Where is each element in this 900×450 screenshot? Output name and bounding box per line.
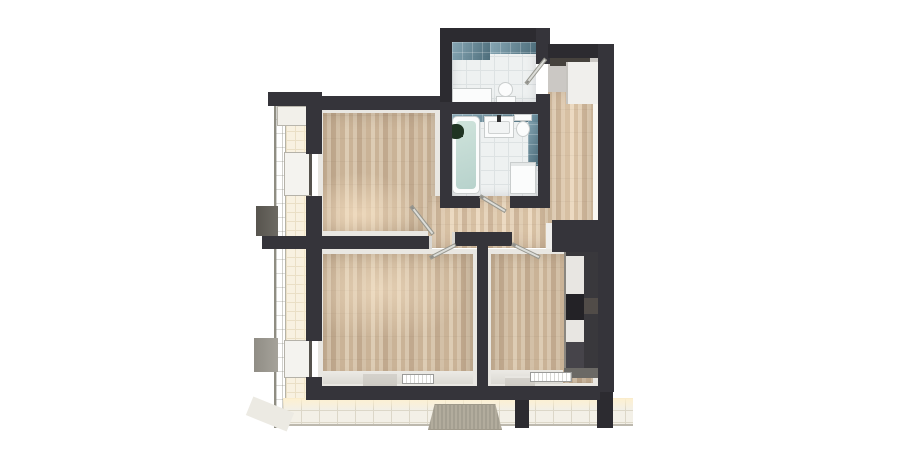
- glass-railing: [274, 96, 286, 428]
- radiator-kitchen: [530, 372, 572, 382]
- balcony-unit-box: [277, 106, 307, 126]
- counter-marble-upper: [566, 256, 584, 294]
- privacy-fin-lower: [254, 338, 278, 372]
- wc-teal-tiles-left: [452, 42, 490, 60]
- washing-machine: [510, 162, 536, 194]
- wall-hall-right-block: [552, 220, 614, 252]
- wall-bath-right: [538, 114, 550, 196]
- sink-basin: [488, 121, 510, 134]
- wall-right-outer: [598, 44, 614, 392]
- wall-face-white: [546, 223, 552, 249]
- wall-bath-bottom-left: [440, 196, 480, 208]
- cabinet-handle-block: [584, 298, 598, 314]
- wall-t-horizontal: [455, 232, 512, 246]
- wall-wc-top: [440, 28, 550, 42]
- wall-bath-left: [440, 114, 452, 208]
- window-sill-bedroom: [284, 152, 312, 196]
- wall-wc-bath-divider: [440, 102, 550, 114]
- counter-marble-lower: [566, 320, 584, 342]
- living-room-light-patch: [323, 254, 473, 383]
- wall-bath-bottom-right: [510, 196, 550, 208]
- wc-toilet-bowl: [498, 82, 513, 97]
- doormat: [428, 404, 502, 430]
- sink-faucet: [497, 115, 501, 122]
- radiator-living: [402, 374, 434, 384]
- floor-plan: [0, 0, 900, 450]
- wall-left-b: [306, 196, 322, 236]
- wall-bottom: [306, 386, 600, 400]
- wall-room-divider: [262, 236, 432, 249]
- oven: [566, 294, 584, 320]
- wc-teal-tiles-right: [490, 42, 536, 54]
- bathroom-teal-right: [528, 114, 538, 166]
- privacy-fin-upper: [256, 206, 278, 236]
- living-window-sill-band: [323, 371, 473, 384]
- wall-bedroom-top: [306, 96, 446, 110]
- window-sill-living: [284, 340, 312, 378]
- bathroom-toilet-bowl: [516, 121, 530, 137]
- bathroom-toilet-tank: [514, 114, 532, 121]
- wall-left-c: [306, 249, 322, 341]
- wall-t-stem: [477, 246, 488, 388]
- wall-left-a: [306, 96, 322, 154]
- wardrobe: [566, 62, 598, 104]
- wall-end-cap-1: [429, 236, 432, 249]
